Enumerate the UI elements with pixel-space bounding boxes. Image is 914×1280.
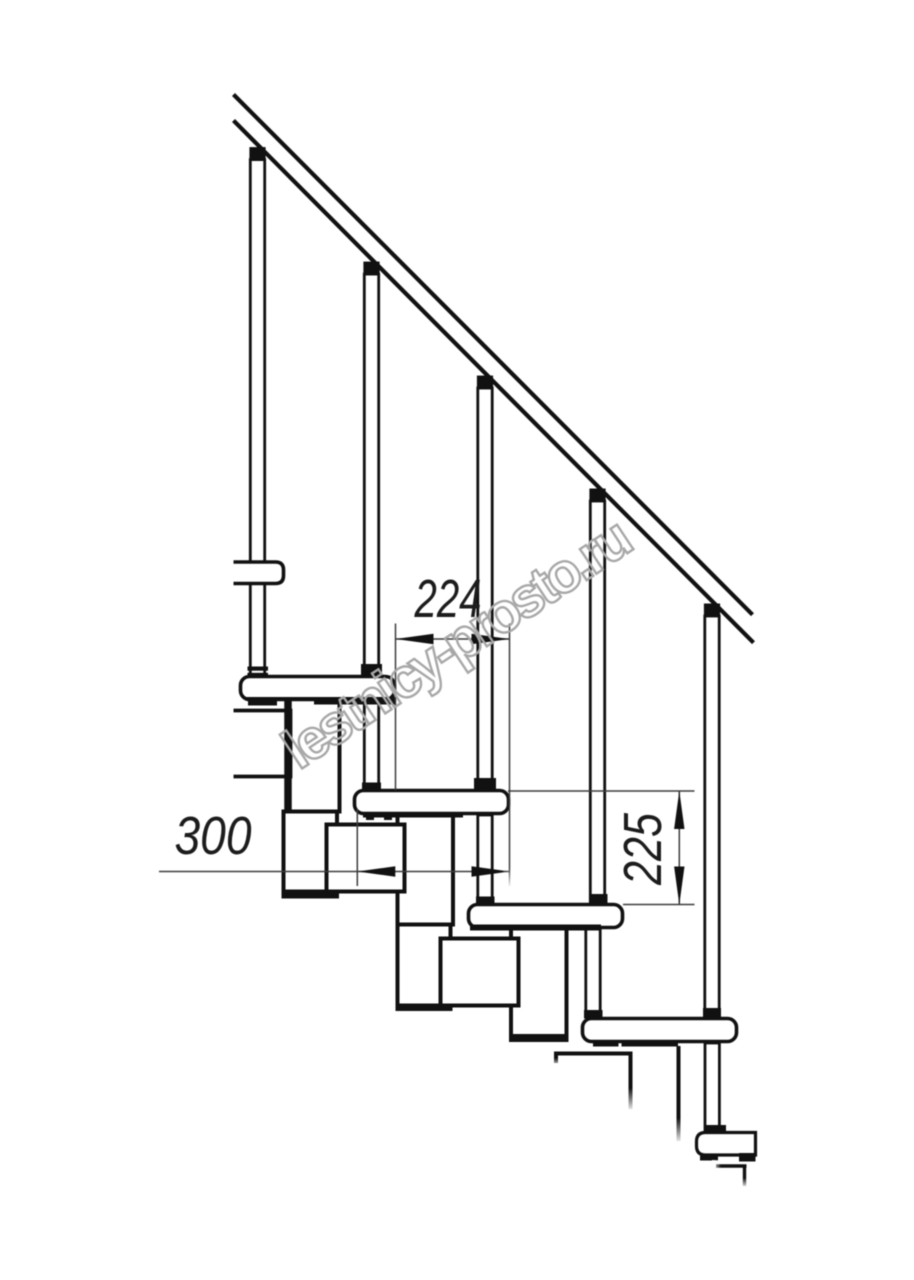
svg-text:300: 300 [175, 806, 252, 866]
svg-text:225: 225 [613, 812, 673, 886]
